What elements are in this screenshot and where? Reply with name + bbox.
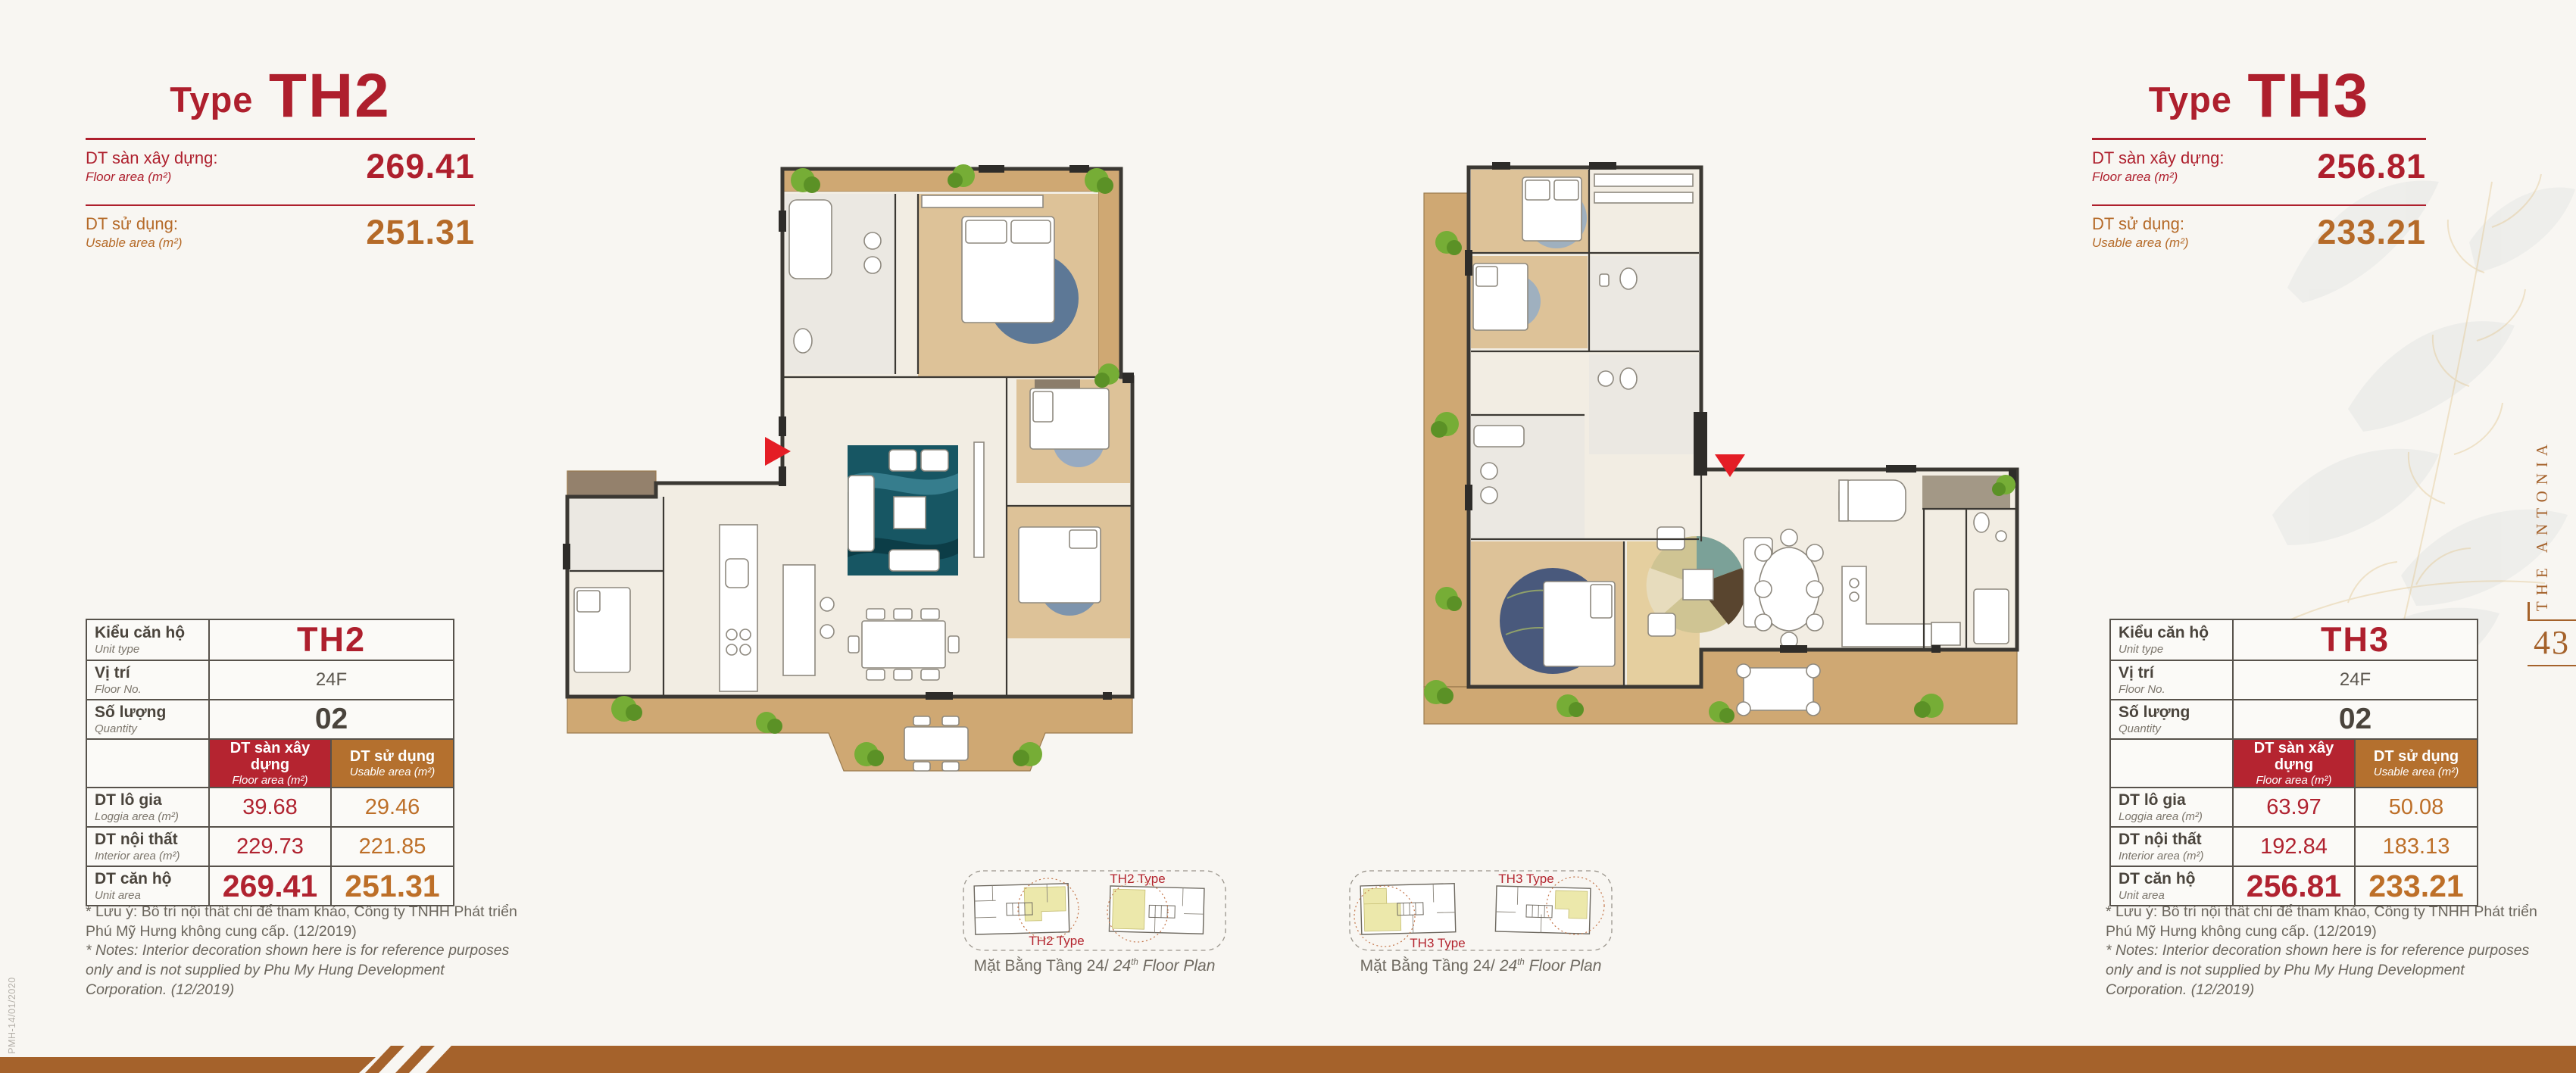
unit-type-value: TH2 [297,620,366,659]
row-label-vi: DT lô gia [2119,791,2225,809]
floor-area-metric: DT sàn xây dựng: Floor area (m²) 256.81 [2092,140,2426,194]
keyplan-label-top: TH2 Type [1096,872,1179,887]
row-label-vi: Số lượng [2119,703,2225,721]
table-header-row: DT sàn xây dựngFloor area (m²) DT sử dụn… [2110,739,2478,788]
row-label-en: Loggia area (m²) [2119,810,2225,823]
keyplan-building [1495,886,1591,934]
floor-area-label-en: Floor area (m²) [86,170,218,185]
note-en: * Notes: Interior decoration shown here … [86,941,529,1000]
unit-title-code: TH2 [269,61,391,130]
note-en: * Notes: Interior decoration shown here … [2106,941,2549,1000]
area-table-th2: Kiểu căn hộUnit type TH2 Vị tríFloor No.… [86,619,454,906]
usable-area-label-en: Usable area (m²) [86,235,183,251]
usable-area-metric: DT sử dụng: Usable area (m²) 233.21 [2092,206,2426,260]
table-row: DT căn hộUnit area 256.81 233.21 [2110,866,2478,906]
keyplan-building [974,884,1069,934]
unit-usable-value: 251.31 [331,866,454,906]
unit-usable-value: 233.21 [2355,866,2478,906]
quantity-value: 02 [2339,703,2371,735]
unit-title-prefix: Type [2149,80,2232,120]
interior-usable-value: 221.85 [331,827,454,866]
unit-title-prefix: Type [170,80,253,120]
usable-area-value: 251.31 [366,213,475,252]
unit-title: Type TH2 [86,65,475,127]
floor-no-value: 24F [316,669,347,690]
footer-band [0,1043,2576,1073]
row-label-en: Interior area (m²) [2119,850,2225,862]
table-row: DT căn hộUnit area 269.41 251.31 [86,866,454,906]
table-row: Kiểu căn hộUnit type TH2 [86,619,454,660]
page-number: 43 [2528,621,2576,665]
floor-area-value: 256.81 [2317,147,2426,186]
row-label-en: Floor No. [95,683,201,696]
loggia-usable-value: 50.08 [2355,788,2478,827]
floorplan-th2 [539,150,1185,772]
area-table-th3: Kiểu căn hộUnit type TH3 Vị tríFloor No.… [2109,619,2478,906]
floor-area-label-vi: DT sàn xây dựng: [86,148,218,168]
unit-title-code: TH3 [2247,61,2369,130]
row-label-vi: Kiểu căn hộ [95,624,201,641]
loggia-floor-value: 39.68 [209,788,331,827]
keyplan-building [1109,886,1204,934]
floorplan-caption: Mặt Bằng Tầng 24/24th Floor Plan [1329,957,1632,975]
usable-area-value: 233.21 [2317,213,2426,252]
row-label-en: Unit area [2119,889,2225,902]
col-header-floor-area: DT sàn xây dựngFloor area (m²) [209,739,331,788]
loggia-floor-value: 63.97 [2233,788,2355,827]
row-label-vi: DT nội thất [2119,831,2225,848]
table-row: Vị tríFloor No. 24F [86,660,454,700]
brand-vertical-text: THE ANTONIA [2533,438,2553,612]
col-header-usable-area: DT sử dụngUsable area (m²) [331,739,454,788]
usable-area-label-vi: DT sử dụng: [2092,214,2189,234]
interior-usable-value: 183.13 [2355,827,2478,866]
loggia-usable-value: 29.46 [331,788,454,827]
keyplan-label-bottom: TH2 Type [1015,934,1098,949]
notes-th3: * Lưu ý: Bố trí nội thất chỉ để tham khả… [2106,903,2549,1000]
floor-no-value: 24F [2340,669,2371,690]
keyplan-building [1360,884,1456,934]
row-label-en: Unit area [95,889,201,902]
table-row: DT lô giaLoggia area (m²) 63.97 50.08 [2110,788,2478,827]
table-row: Vị tríFloor No. 24F [2110,660,2478,700]
floor-area-label-en: Floor area (m²) [2092,170,2225,185]
table-row: Số lượngQuantity 02 [2110,700,2478,739]
floorplan-caption: Mặt Bằng Tầng 24/24th Floor Plan [943,957,1246,975]
brochure-page: Type TH2 DT sàn xây dựng: Floor area (m²… [0,0,2576,1073]
unit-title: Type TH3 [2092,65,2426,127]
keyplan-label-top: TH3 Type [1485,872,1568,887]
row-label-en: Quantity [95,722,201,735]
row-label-en: Quantity [2119,722,2225,735]
interior-floor-value: 192.84 [2233,827,2355,866]
note-vi: * Lưu ý: Bố trí nội thất chỉ để tham khả… [2106,903,2549,941]
row-label-vi: Kiểu căn hộ [2119,624,2225,641]
keyplan-label-bottom: TH3 Type [1396,936,1479,951]
note-vi: * Lưu ý: Bố trí nội thất chỉ để tham khả… [86,903,529,941]
col-header-usable-area: DT sử dụngUsable area (m²) [2355,739,2478,788]
table-row: Kiểu căn hộUnit type TH3 [2110,619,2478,660]
unit-floor-value: 256.81 [2233,866,2355,906]
table-row: DT nội thấtInterior area (m²) 192.84 183… [2110,827,2478,866]
usable-area-label-vi: DT sử dụng: [86,214,183,234]
row-label-en: Unit type [95,643,201,656]
floor-area-label-vi: DT sàn xây dựng: [2092,148,2225,168]
unit-header-th2: Type TH2 DT sàn xây dựng: Floor area (m²… [86,65,475,260]
row-label-vi: Vị trí [2119,664,2225,682]
floorplan-th3 [1401,129,2047,751]
row-label-vi: DT lô gia [95,791,201,809]
row-label-vi: Số lượng [95,703,201,721]
usable-area-metric: DT sử dụng: Usable area (m²) 251.31 [86,206,475,260]
row-label-vi: DT căn hộ [2119,870,2225,887]
row-label-vi: DT nội thất [95,831,201,848]
divider [2528,665,2576,666]
row-label-en: Loggia area (m²) [95,810,201,823]
table-row: Số lượngQuantity 02 [86,700,454,739]
row-label-en: Floor No. [2119,683,2225,696]
unit-header-th3: Type TH3 DT sàn xây dựng: Floor area (m²… [2092,65,2426,260]
unit-floor-value: 269.41 [209,866,331,906]
floor-area-metric: DT sàn xây dựng: Floor area (m²) 269.41 [86,140,475,194]
row-label-vi: DT căn hộ [95,870,201,887]
page-number-block: 43 [2528,619,2576,666]
table-row: DT nội thấtInterior area (m²) 229.73 221… [86,827,454,866]
usable-area-label-en: Usable area (m²) [2092,235,2189,251]
row-label-vi: Vị trí [95,664,201,682]
table-row: DT lô giaLoggia area (m²) 39.68 29.46 [86,788,454,827]
row-label-en: Unit type [2119,643,2225,656]
unit-type-value: TH3 [2321,620,2390,659]
notes-th2: * Lưu ý: Bố trí nội thất chỉ để tham khả… [86,903,529,1000]
quantity-value: 02 [315,703,348,735]
keyplan-th3 [1348,869,1613,954]
col-header-floor-area: DT sàn xây dựngFloor area (m²) [2233,739,2355,788]
table-header-row: DT sàn xây dựngFloor area (m²) DT sử dụn… [86,739,454,788]
interior-floor-value: 229.73 [209,827,331,866]
floor-area-value: 269.41 [366,147,475,186]
row-label-en: Interior area (m²) [95,850,201,862]
